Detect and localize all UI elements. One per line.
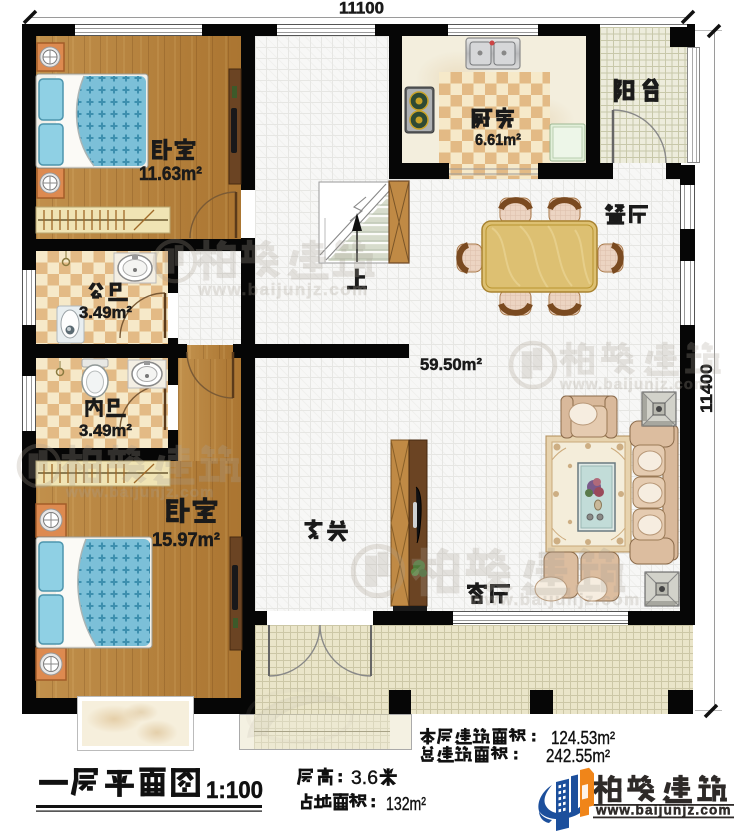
svg-text:www.baijunjz.com: www.baijunjz.com (65, 484, 215, 501)
svg-text:www.baijunjz.com: www.baijunjz.com (559, 376, 709, 393)
svg-text:11.63m²: 11.63m² (139, 164, 202, 185)
svg-text:1:100: 1:100 (206, 777, 263, 804)
svg-text:124.53m²: 124.53m² (551, 728, 615, 748)
svg-text:3.49m²: 3.49m² (79, 303, 132, 322)
svg-text:www.baijunjz.com: www.baijunjz.com (469, 590, 641, 609)
svg-text:3.49m²: 3.49m² (79, 421, 132, 440)
svg-text:3.6: 3.6 (351, 768, 378, 789)
svg-text:11100: 11100 (339, 0, 384, 18)
svg-text:132m²: 132m² (386, 793, 426, 814)
svg-text:59.50m²: 59.50m² (420, 355, 482, 374)
svg-text:15.97m²: 15.97m² (152, 530, 220, 551)
svg-text:www.baijunjz.com: www.baijunjz.com (197, 280, 369, 299)
svg-text:6.61m²: 6.61m² (475, 132, 521, 149)
svg-text:242.55m²: 242.55m² (546, 746, 610, 766)
svg-text:www.baijunjz.com: www.baijunjz.com (595, 803, 732, 818)
